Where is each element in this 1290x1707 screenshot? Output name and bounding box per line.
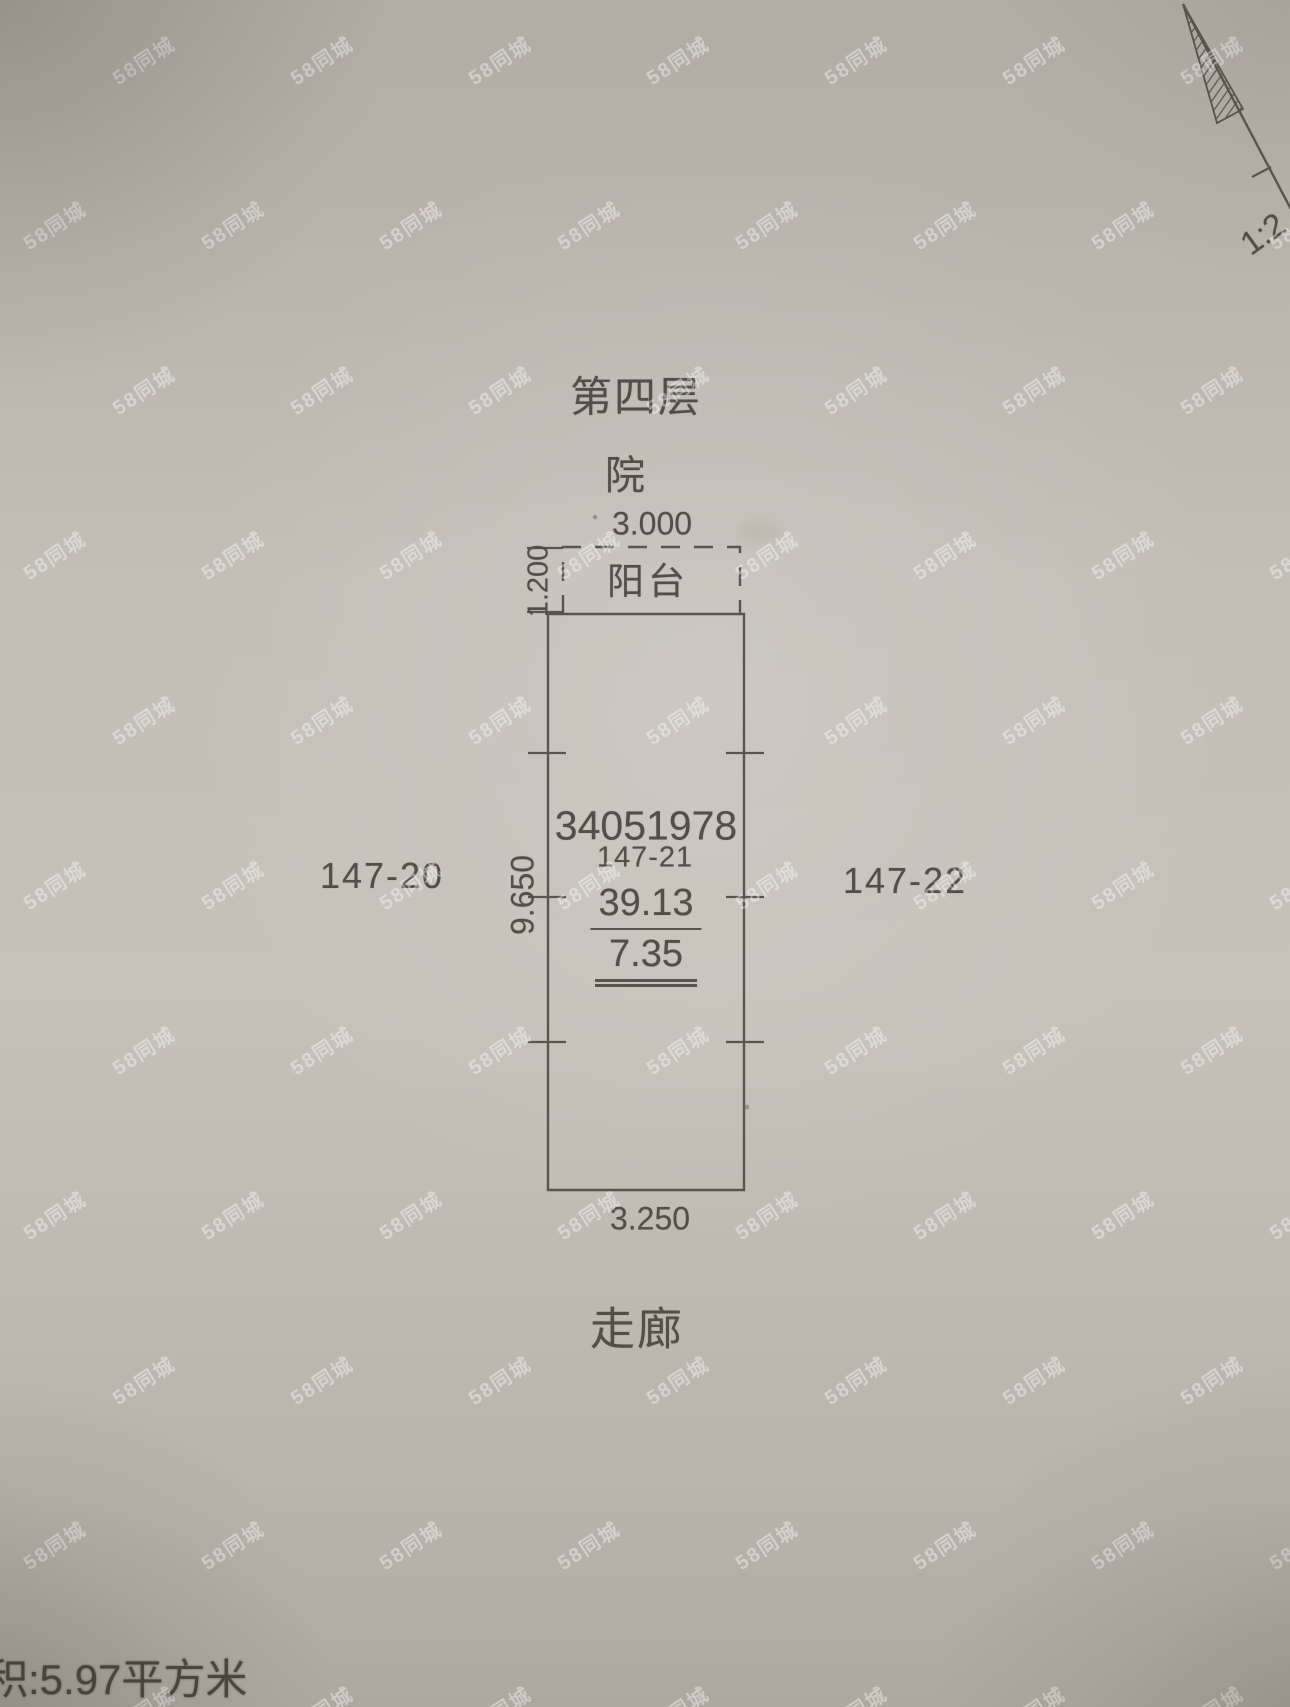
paper-smudge	[736, 522, 782, 542]
neighbor-parcel-right: 147-22	[843, 860, 967, 902]
floor-title: 第四层	[570, 364, 702, 425]
north-arrow-icon	[1183, 4, 1290, 215]
balcony-depth-dim: 1.200	[523, 545, 556, 618]
corridor-label: 走廊	[590, 1293, 684, 1358]
parcel-id: 147-21	[597, 842, 693, 875]
paper-speck	[745, 1105, 750, 1110]
balcony-width-dim: 3.000	[612, 506, 692, 543]
parcel-inner-area-value: 7.35	[595, 933, 697, 987]
parcel-height-dim: 9.650	[505, 855, 542, 935]
parcel-area-value: 39.13	[590, 882, 701, 930]
area-note: 积:5.97平方米	[0, 1646, 247, 1707]
paper-speck	[593, 515, 597, 519]
parcel-width-bottom-dim: 3.250	[610, 1201, 690, 1238]
neighbor-parcel-left: 147-20	[320, 855, 444, 897]
floorplan-photo: 第四层 院 3.000 阳台 1.200 34051978 147-21 39.…	[0, 0, 1290, 1707]
courtyard-label: 院	[605, 443, 645, 501]
balcony-label: 阳台	[607, 551, 689, 605]
